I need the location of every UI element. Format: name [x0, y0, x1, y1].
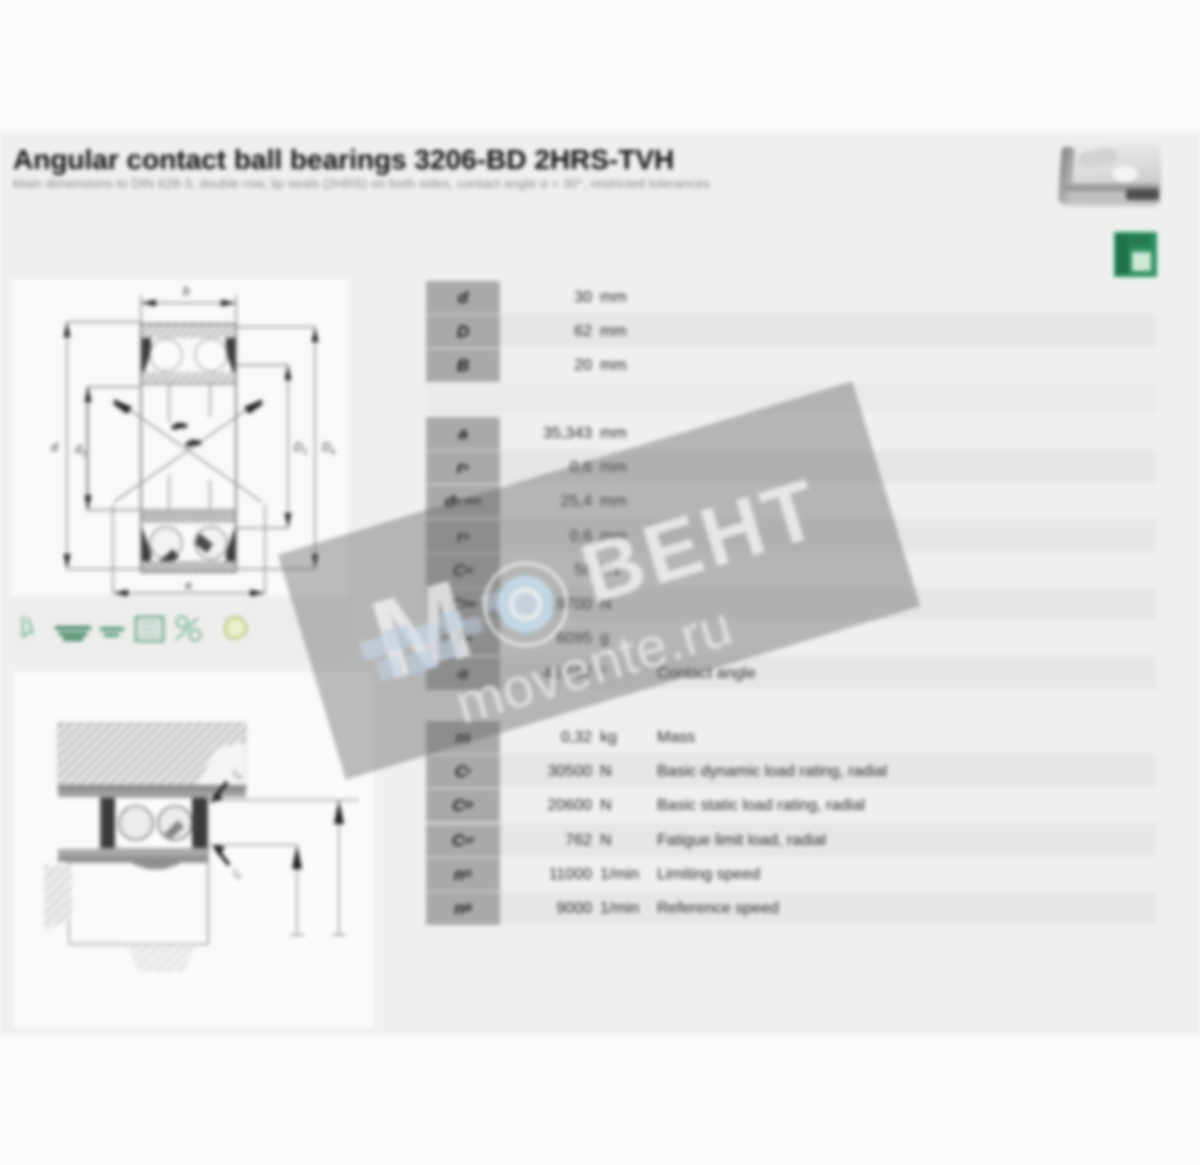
- svg-text:rb: rb: [233, 867, 242, 881]
- svg-text:d: d: [51, 440, 58, 454]
- svg-text:b: b: [183, 284, 190, 298]
- svg-text:Da: Da: [322, 440, 336, 456]
- svg-text:a: a: [185, 578, 192, 592]
- svg-text:D1: D1: [294, 440, 307, 456]
- svg-text:d1: d1: [75, 442, 86, 458]
